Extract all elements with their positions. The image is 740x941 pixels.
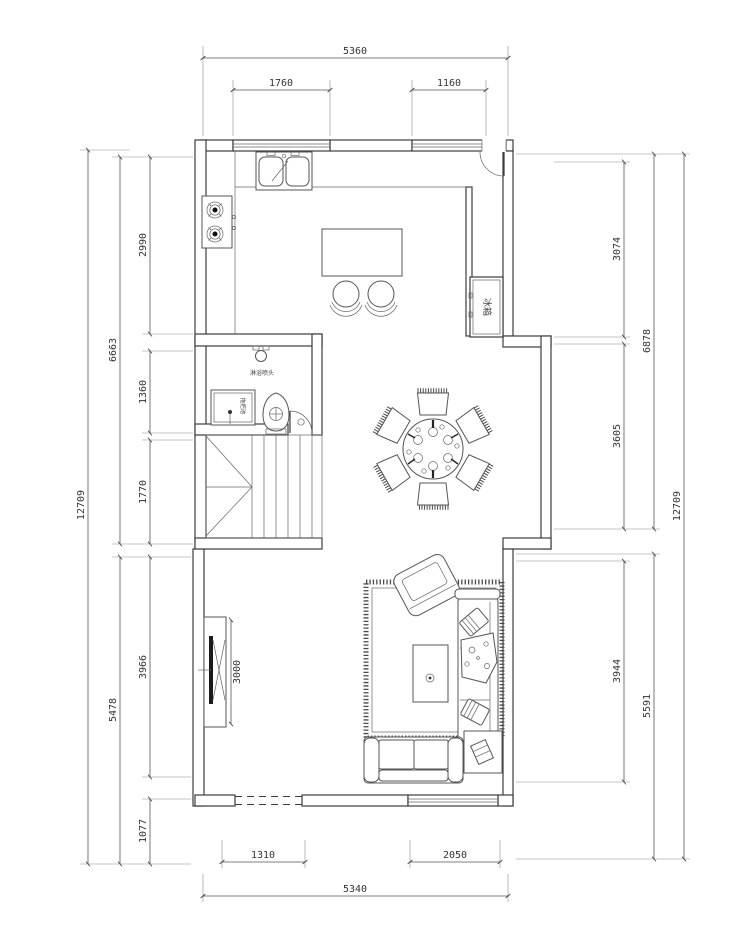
kitchen-island — [322, 229, 402, 276]
fridge-label: 冰箱 — [481, 298, 493, 316]
dim-tv-wall: 3000 — [232, 660, 243, 684]
dim-left-inner-1: 1360 — [138, 380, 149, 404]
dim-bottom-total: 5340 — [343, 884, 367, 895]
dim-right-inner-2: 3944 — [612, 659, 623, 683]
dim-left-outer: 12709 — [76, 490, 87, 520]
dim-top-window-right: 1160 — [437, 78, 461, 89]
dining-set — [375, 391, 492, 508]
dim-bottom-window: 2050 — [443, 850, 467, 861]
refrigerator: 冰箱 — [469, 277, 503, 337]
bathroom: 淋浴喷头 拖把池 — [211, 346, 312, 434]
dim-right-outer: 12709 — [672, 491, 683, 521]
shower-head: 淋浴喷头 — [250, 346, 274, 377]
kitchen-sink — [256, 152, 312, 190]
coffee-table — [413, 645, 448, 702]
dim-right-inner-1: 3605 — [612, 424, 623, 448]
armchair — [391, 552, 462, 619]
dim-top-total: 5360 — [343, 46, 367, 57]
side-table — [464, 731, 502, 773]
dim-left-mid-lower: 5478 — [108, 698, 119, 722]
window-bottom — [408, 795, 498, 806]
floor-plan-canvas: 冰箱 淋浴喷头 拖把池 — [0, 0, 740, 941]
dim-right-mid-lower: 5591 — [642, 694, 653, 718]
dim-right-mid-upper: 6878 — [642, 329, 653, 353]
mop-pool-label: 拖把池 — [239, 398, 247, 415]
dim-left-inner-2: 1770 — [138, 480, 149, 504]
window-top-right — [412, 140, 486, 151]
sofa-bottom — [364, 737, 463, 783]
opening-dashed — [235, 797, 302, 805]
dim-left-mid-upper: 6663 — [108, 338, 119, 362]
floor-drain — [298, 419, 304, 425]
bathroom-door — [290, 411, 312, 433]
dim-left-inner-0: 2990 — [138, 233, 149, 257]
living-room — [198, 552, 502, 783]
bar-stools — [330, 281, 397, 316]
dim-left-inner-3: 3966 — [138, 655, 149, 679]
sofa-right — [455, 589, 500, 753]
dining-chair — [418, 391, 449, 416]
dim-bottom-opening: 1310 — [251, 850, 275, 861]
dim-top-window-left: 1760 — [269, 78, 293, 89]
dining-chair — [418, 483, 449, 508]
balcony-door — [480, 139, 506, 176]
stove — [202, 196, 236, 248]
dim-left-inner-4: 1077 — [138, 819, 149, 843]
floor-plan-drawing: 冰箱 淋浴喷头 拖把池 — [0, 0, 740, 941]
window-top-left — [233, 140, 330, 151]
staircase — [206, 435, 322, 538]
mop-pool: 拖把池 — [211, 390, 255, 425]
toilet — [263, 393, 289, 434]
kitchen: 冰箱 — [202, 151, 503, 337]
dim-right-inner-0: 3074 — [612, 237, 623, 261]
shower-label: 淋浴喷头 — [250, 369, 274, 377]
